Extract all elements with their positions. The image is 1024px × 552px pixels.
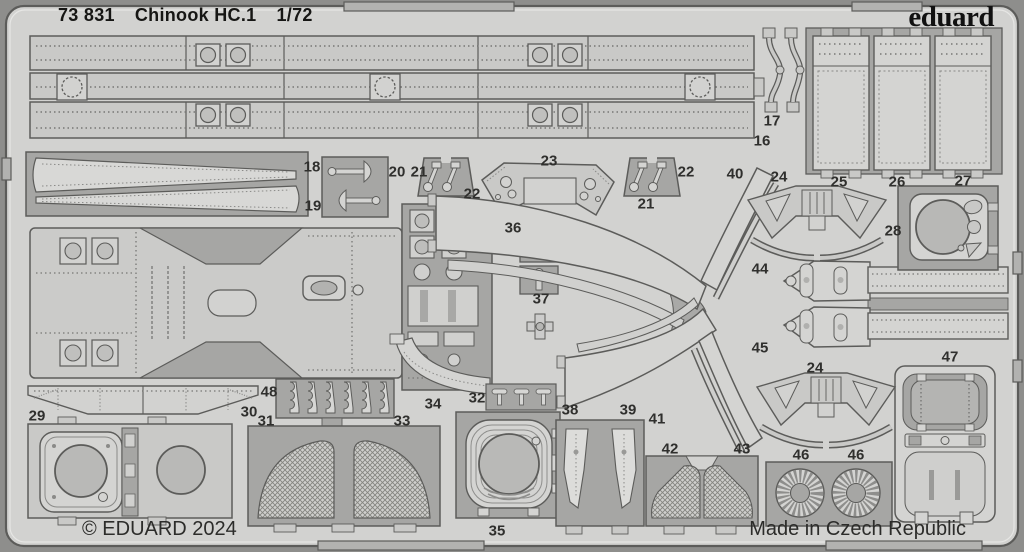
levers-block-a <box>418 156 474 196</box>
walkway-strips-part16 <box>30 36 764 138</box>
blades-38-39 <box>556 420 644 534</box>
taper-strips-parts18-19 <box>26 152 308 216</box>
eduard-logo: eduard <box>908 1 994 34</box>
header-title: 73 831Chinook HC.11/72 <box>58 5 333 26</box>
mesh-triangles-42-43 <box>646 456 758 534</box>
fan-rings-46 <box>766 462 892 526</box>
product-name: Chinook HC.1 <box>135 5 257 25</box>
floor-panel <box>30 228 402 378</box>
comb-parts-48 <box>276 379 394 418</box>
levers-block-b <box>624 156 680 196</box>
rect-panels-25-27 <box>806 28 1002 178</box>
copyright-text: © EDUARD 2024 <box>82 518 237 541</box>
plate-part35 <box>456 412 562 518</box>
scale: 1/72 <box>276 5 312 25</box>
fret-sheet <box>0 0 1024 552</box>
block-part20 <box>322 157 388 217</box>
catalog-number: 73 831 <box>58 5 115 25</box>
pins-part32 <box>486 384 556 410</box>
panel-31 <box>28 417 232 525</box>
ramp-part47 <box>895 366 995 524</box>
panel-part28 <box>898 186 998 270</box>
product-photo: 73 831Chinook HC.11/72 eduard © EDUARD 2… <box>0 0 1024 552</box>
mesh-screens-31-33 <box>248 418 440 532</box>
made-in-text: Made in Czech Republic <box>749 518 966 541</box>
